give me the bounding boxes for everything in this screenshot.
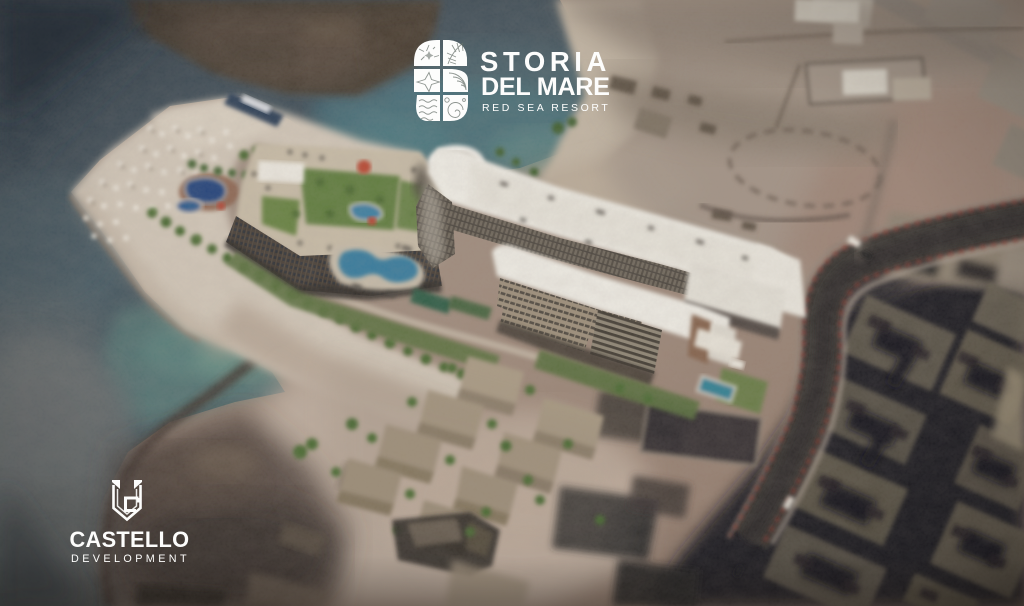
- svg-text:DEVELOPMENT: DEVELOPMENT: [71, 553, 190, 565]
- svg-text:DEL MARE: DEL MARE: [481, 73, 610, 101]
- svg-text:RED SEA RESORT: RED SEA RESORT: [482, 102, 610, 114]
- svg-text:CASTELLO: CASTELLO: [70, 527, 190, 552]
